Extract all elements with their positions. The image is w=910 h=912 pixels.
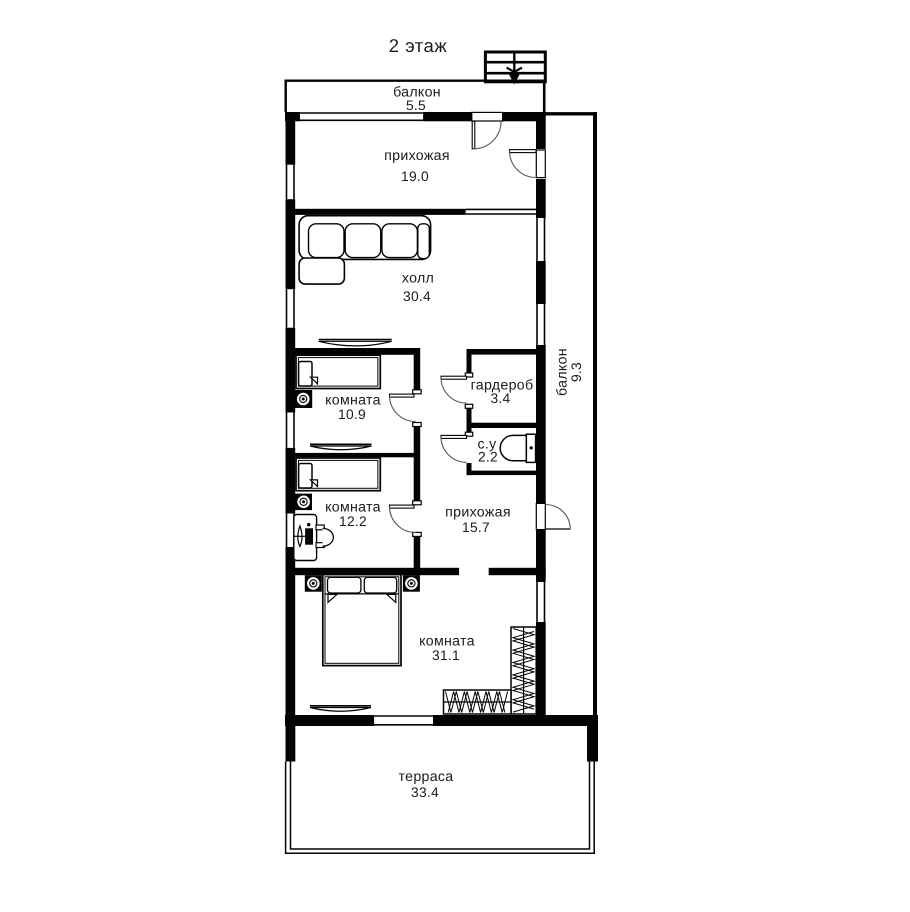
svg-text:3.4: 3.4	[490, 391, 510, 406]
svg-text:терраса: терраса	[399, 769, 454, 785]
svg-text:5.5: 5.5	[406, 98, 426, 113]
svg-text:холл: холл	[402, 271, 434, 287]
svg-text:9.3: 9.3	[569, 362, 584, 382]
svg-text:прихожая: прихожая	[384, 148, 450, 164]
svg-text:10.9: 10.9	[338, 407, 366, 422]
svg-text:33.4: 33.4	[411, 785, 439, 800]
svg-text:15.7: 15.7	[462, 520, 490, 535]
svg-text:2.2: 2.2	[478, 450, 498, 465]
svg-text:19.0: 19.0	[401, 169, 429, 184]
svg-text:31.1: 31.1	[432, 648, 460, 663]
svg-text:2 этаж: 2 этаж	[389, 35, 448, 56]
svg-text:прихожая: прихожая	[445, 505, 511, 521]
svg-text:30.4: 30.4	[403, 289, 431, 304]
svg-text:12.2: 12.2	[339, 514, 367, 529]
